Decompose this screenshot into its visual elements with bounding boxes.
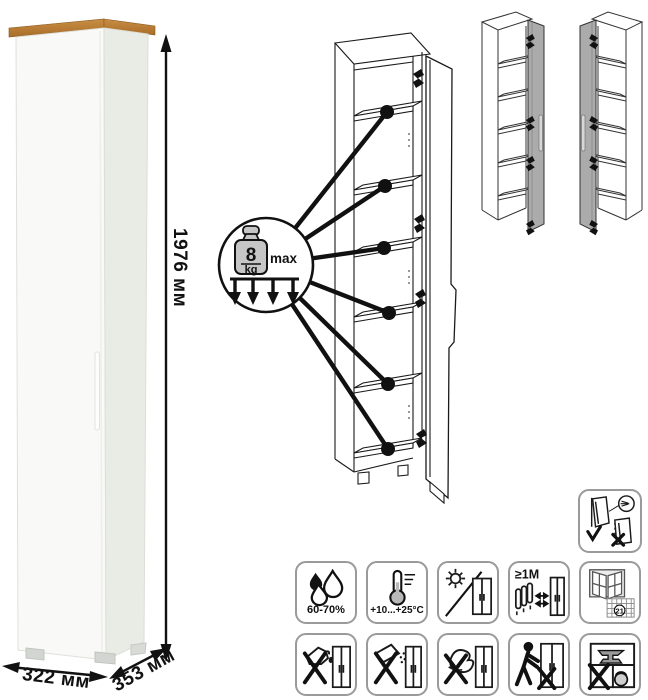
- spacing-arrows: [536, 593, 548, 606]
- wardrobe-glyph: [406, 646, 421, 687]
- foot-left: [26, 648, 44, 660]
- no-dragging-icon: [508, 633, 570, 696]
- height-dimension-arrow: [161, 34, 172, 662]
- temperature-icon: +10...+25°C: [366, 561, 428, 624]
- wardrobe-glyph: [473, 578, 491, 614]
- no-direct-sunlight-icon: [437, 561, 499, 624]
- distance-label: ≥1M: [515, 567, 539, 581]
- shelf-pointer-dots: [377, 105, 396, 456]
- kettlebell-icon: [615, 672, 628, 686]
- door-side-variants: [476, 2, 648, 242]
- ventilation-icon: 21: [579, 561, 641, 624]
- anchor-to-wall-icon: [578, 489, 642, 553]
- load-unit: kg: [245, 264, 258, 276]
- wardrobe-glyph: [476, 646, 492, 687]
- radiator-icon: [516, 583, 532, 615]
- foot-side: [131, 643, 146, 655]
- product-photo: 1976 мм 322 мм 353 мм: [0, 0, 210, 700]
- drop-large: [324, 571, 342, 597]
- load-value: 8: [246, 245, 257, 266]
- height-label: 1976 мм: [168, 228, 190, 307]
- window-icon: [590, 569, 625, 598]
- hinges: [413, 69, 427, 448]
- no-liquids-icon: [295, 633, 357, 696]
- wardrobe-glyph: [551, 577, 565, 615]
- no-scrubbing-icon: [437, 633, 499, 696]
- variant-door-right: [482, 12, 544, 235]
- wardrobe-glyph: [333, 646, 350, 687]
- load-qualifier: max: [270, 251, 298, 266]
- calendar-day: 21: [615, 606, 624, 615]
- cabinet-photo-rendering: [0, 12, 210, 700]
- calendar-icon: 21: [607, 598, 634, 616]
- variant-door-left: [580, 12, 642, 235]
- foot-right: [95, 652, 115, 664]
- person-icon: [517, 641, 538, 683]
- heat-lines: [405, 575, 415, 585]
- drip: [330, 657, 332, 662]
- temperature-label: +10...+25°C: [370, 605, 423, 616]
- humidity-label: 60-70%: [307, 605, 345, 616]
- interior-shelf-diagram: 8 kg max: [204, 16, 478, 508]
- heat-distance-icon: ≥1M: [508, 561, 570, 624]
- cabinet-front-face: [16, 28, 106, 660]
- sun-icon: [446, 568, 465, 587]
- no-overload-icon: [579, 633, 641, 696]
- cabinet-line-drawing: [335, 33, 456, 503]
- humidity-icon: 60-70%: [295, 561, 357, 624]
- max-load-badge: 8 kg max: [219, 218, 313, 312]
- door-handle-groove: [95, 352, 100, 430]
- check-mark: [588, 527, 601, 540]
- shelves: [354, 101, 422, 458]
- cabinet-side-face: [104, 28, 148, 660]
- product-sheet: 1976 мм 322 мм 353 мм: [0, 0, 648, 700]
- no-powders-icon: [366, 633, 428, 696]
